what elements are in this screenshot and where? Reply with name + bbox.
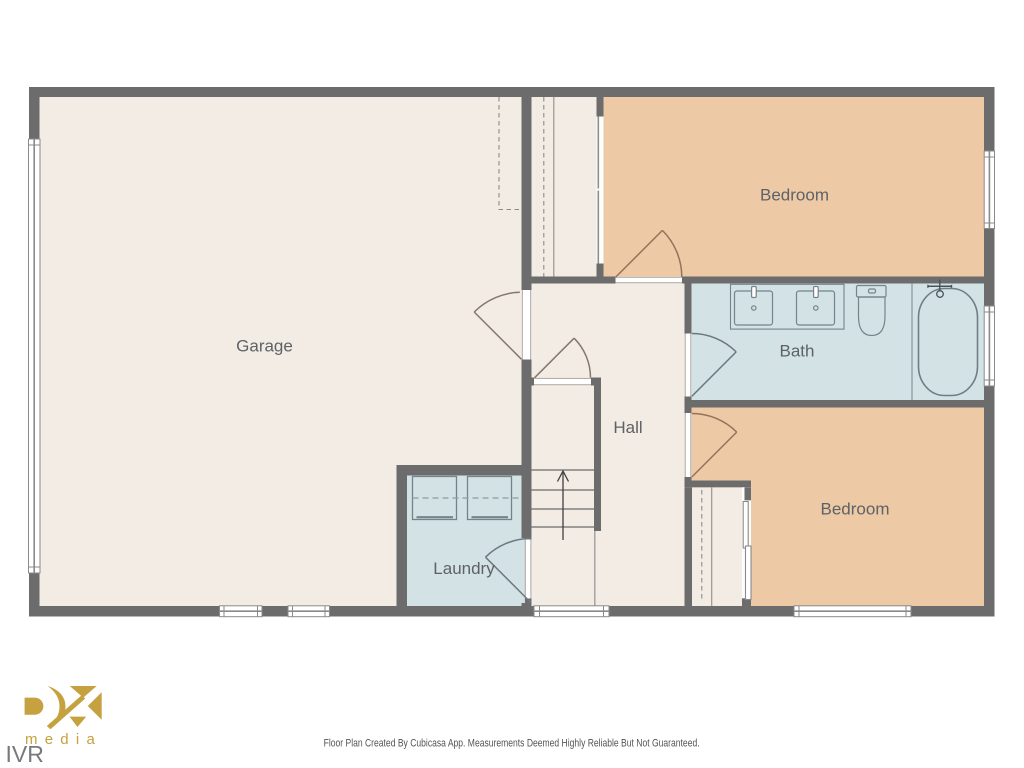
svg-text:Bedroom: Bedroom [821,500,890,519]
svg-text:Bedroom: Bedroom [760,186,829,205]
svg-text:Laundry: Laundry [433,559,495,578]
svg-text:Floor Plan Created By Cubicasa: Floor Plan Created By Cubicasa App. Meas… [324,737,700,749]
svg-text:Bath: Bath [780,342,815,361]
svg-text:IVR: IVR [6,741,44,767]
svg-text:Hall: Hall [613,418,642,437]
svg-text:Garage: Garage [236,337,293,356]
